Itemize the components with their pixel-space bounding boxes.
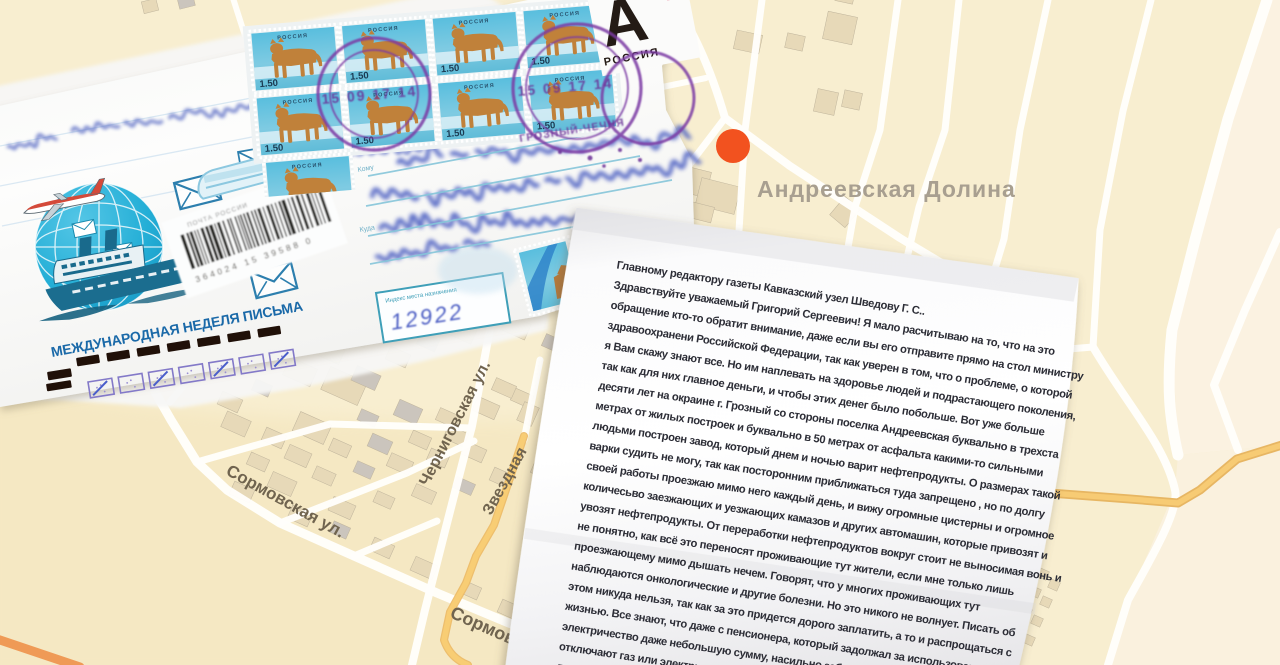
svg-text:Андреевская Долина: Андреевская Долина [757,176,1016,202]
